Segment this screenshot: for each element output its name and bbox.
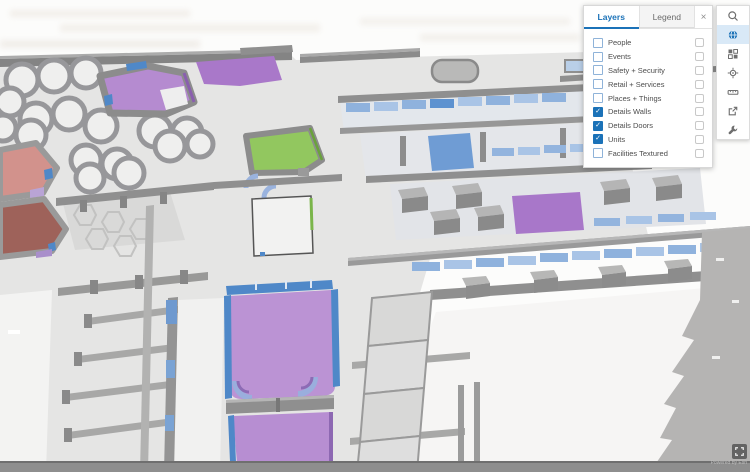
bottom-wall-bar: [0, 461, 750, 472]
locate-icon[interactable]: [717, 63, 749, 82]
layer-label: People: [608, 38, 690, 47]
tab-legend[interactable]: Legend: [639, 6, 695, 28]
layer-row-people: People: [593, 36, 704, 50]
layer-options-icon[interactable]: [695, 107, 704, 116]
basemap-globe-icon[interactable]: [717, 25, 749, 44]
layer-label: Retail + Services: [608, 80, 690, 89]
layer-row-events: Events: [593, 50, 704, 64]
layer-row-details-walls: ✓Details Walls: [593, 105, 704, 119]
basemap-gallery-icon[interactable]: [717, 44, 749, 63]
measure-icon[interactable]: [717, 82, 749, 101]
layer-label: Details Walls: [608, 107, 690, 116]
layer-row-facilities-textured: Facilities Textured: [593, 146, 704, 160]
layer-options-icon[interactable]: [695, 149, 704, 158]
attribution-text: Powered by Esri: [711, 460, 747, 466]
layer-checkbox-people[interactable]: [593, 38, 603, 48]
layer-options-icon[interactable]: [695, 38, 704, 47]
layer-checkbox-places-things[interactable]: [593, 93, 603, 103]
layer-row-units: ✓Units: [593, 133, 704, 147]
close-panel-button[interactable]: ×: [694, 6, 712, 28]
layer-label: Units: [608, 135, 690, 144]
layer-checkbox-details-doors[interactable]: ✓: [593, 121, 603, 131]
layer-options-icon[interactable]: [695, 66, 704, 75]
layer-checkbox-facilities-textured[interactable]: [593, 148, 603, 158]
search-icon[interactable]: [717, 6, 749, 25]
layer-label: Places + Things: [608, 94, 690, 103]
layer-checkbox-details-walls[interactable]: ✓: [593, 107, 603, 117]
layer-label: Safety + Security: [608, 66, 690, 75]
layer-row-retail-services: Retail + Services: [593, 77, 704, 91]
panel-tabbar: Layers Legend ×: [584, 6, 712, 29]
tools-icon[interactable]: [717, 120, 749, 139]
purple-unit-lower: [228, 412, 331, 463]
layer-row-places-things: Places + Things: [593, 91, 704, 105]
layer-options-icon[interactable]: [695, 52, 704, 61]
map-toolbar: [716, 5, 750, 140]
layer-options-icon[interactable]: [695, 94, 704, 103]
layer-row-details-doors: ✓Details Doors: [593, 119, 704, 133]
layer-label: Events: [608, 52, 690, 61]
attribution: Powered by Esri: [711, 444, 747, 466]
attribution-expand-icon[interactable]: [732, 444, 747, 459]
layer-checkbox-units[interactable]: ✓: [593, 134, 603, 144]
layer-options-icon[interactable]: [695, 135, 704, 144]
layer-checkbox-events[interactable]: [593, 52, 603, 62]
layer-checkbox-retail-services[interactable]: [593, 79, 603, 89]
layer-row-safety-security: Safety + Security: [593, 64, 704, 78]
layer-checkbox-safety-security[interactable]: [593, 65, 603, 75]
tab-layers[interactable]: Layers: [584, 6, 639, 28]
purple-unit-large: [224, 279, 340, 414]
layer-options-icon[interactable]: [695, 121, 704, 130]
layers-panel: Layers Legend × PeopleEventsSafety + Sec…: [583, 5, 713, 168]
layer-options-icon[interactable]: [695, 80, 704, 89]
layer-list: PeopleEventsSafety + SecurityRetail + Se…: [584, 29, 712, 160]
open-room-outline: [252, 196, 313, 256]
layer-label: Details Doors: [608, 121, 690, 130]
layer-label: Facilities Textured: [608, 149, 690, 158]
share-icon[interactable]: [717, 101, 749, 120]
